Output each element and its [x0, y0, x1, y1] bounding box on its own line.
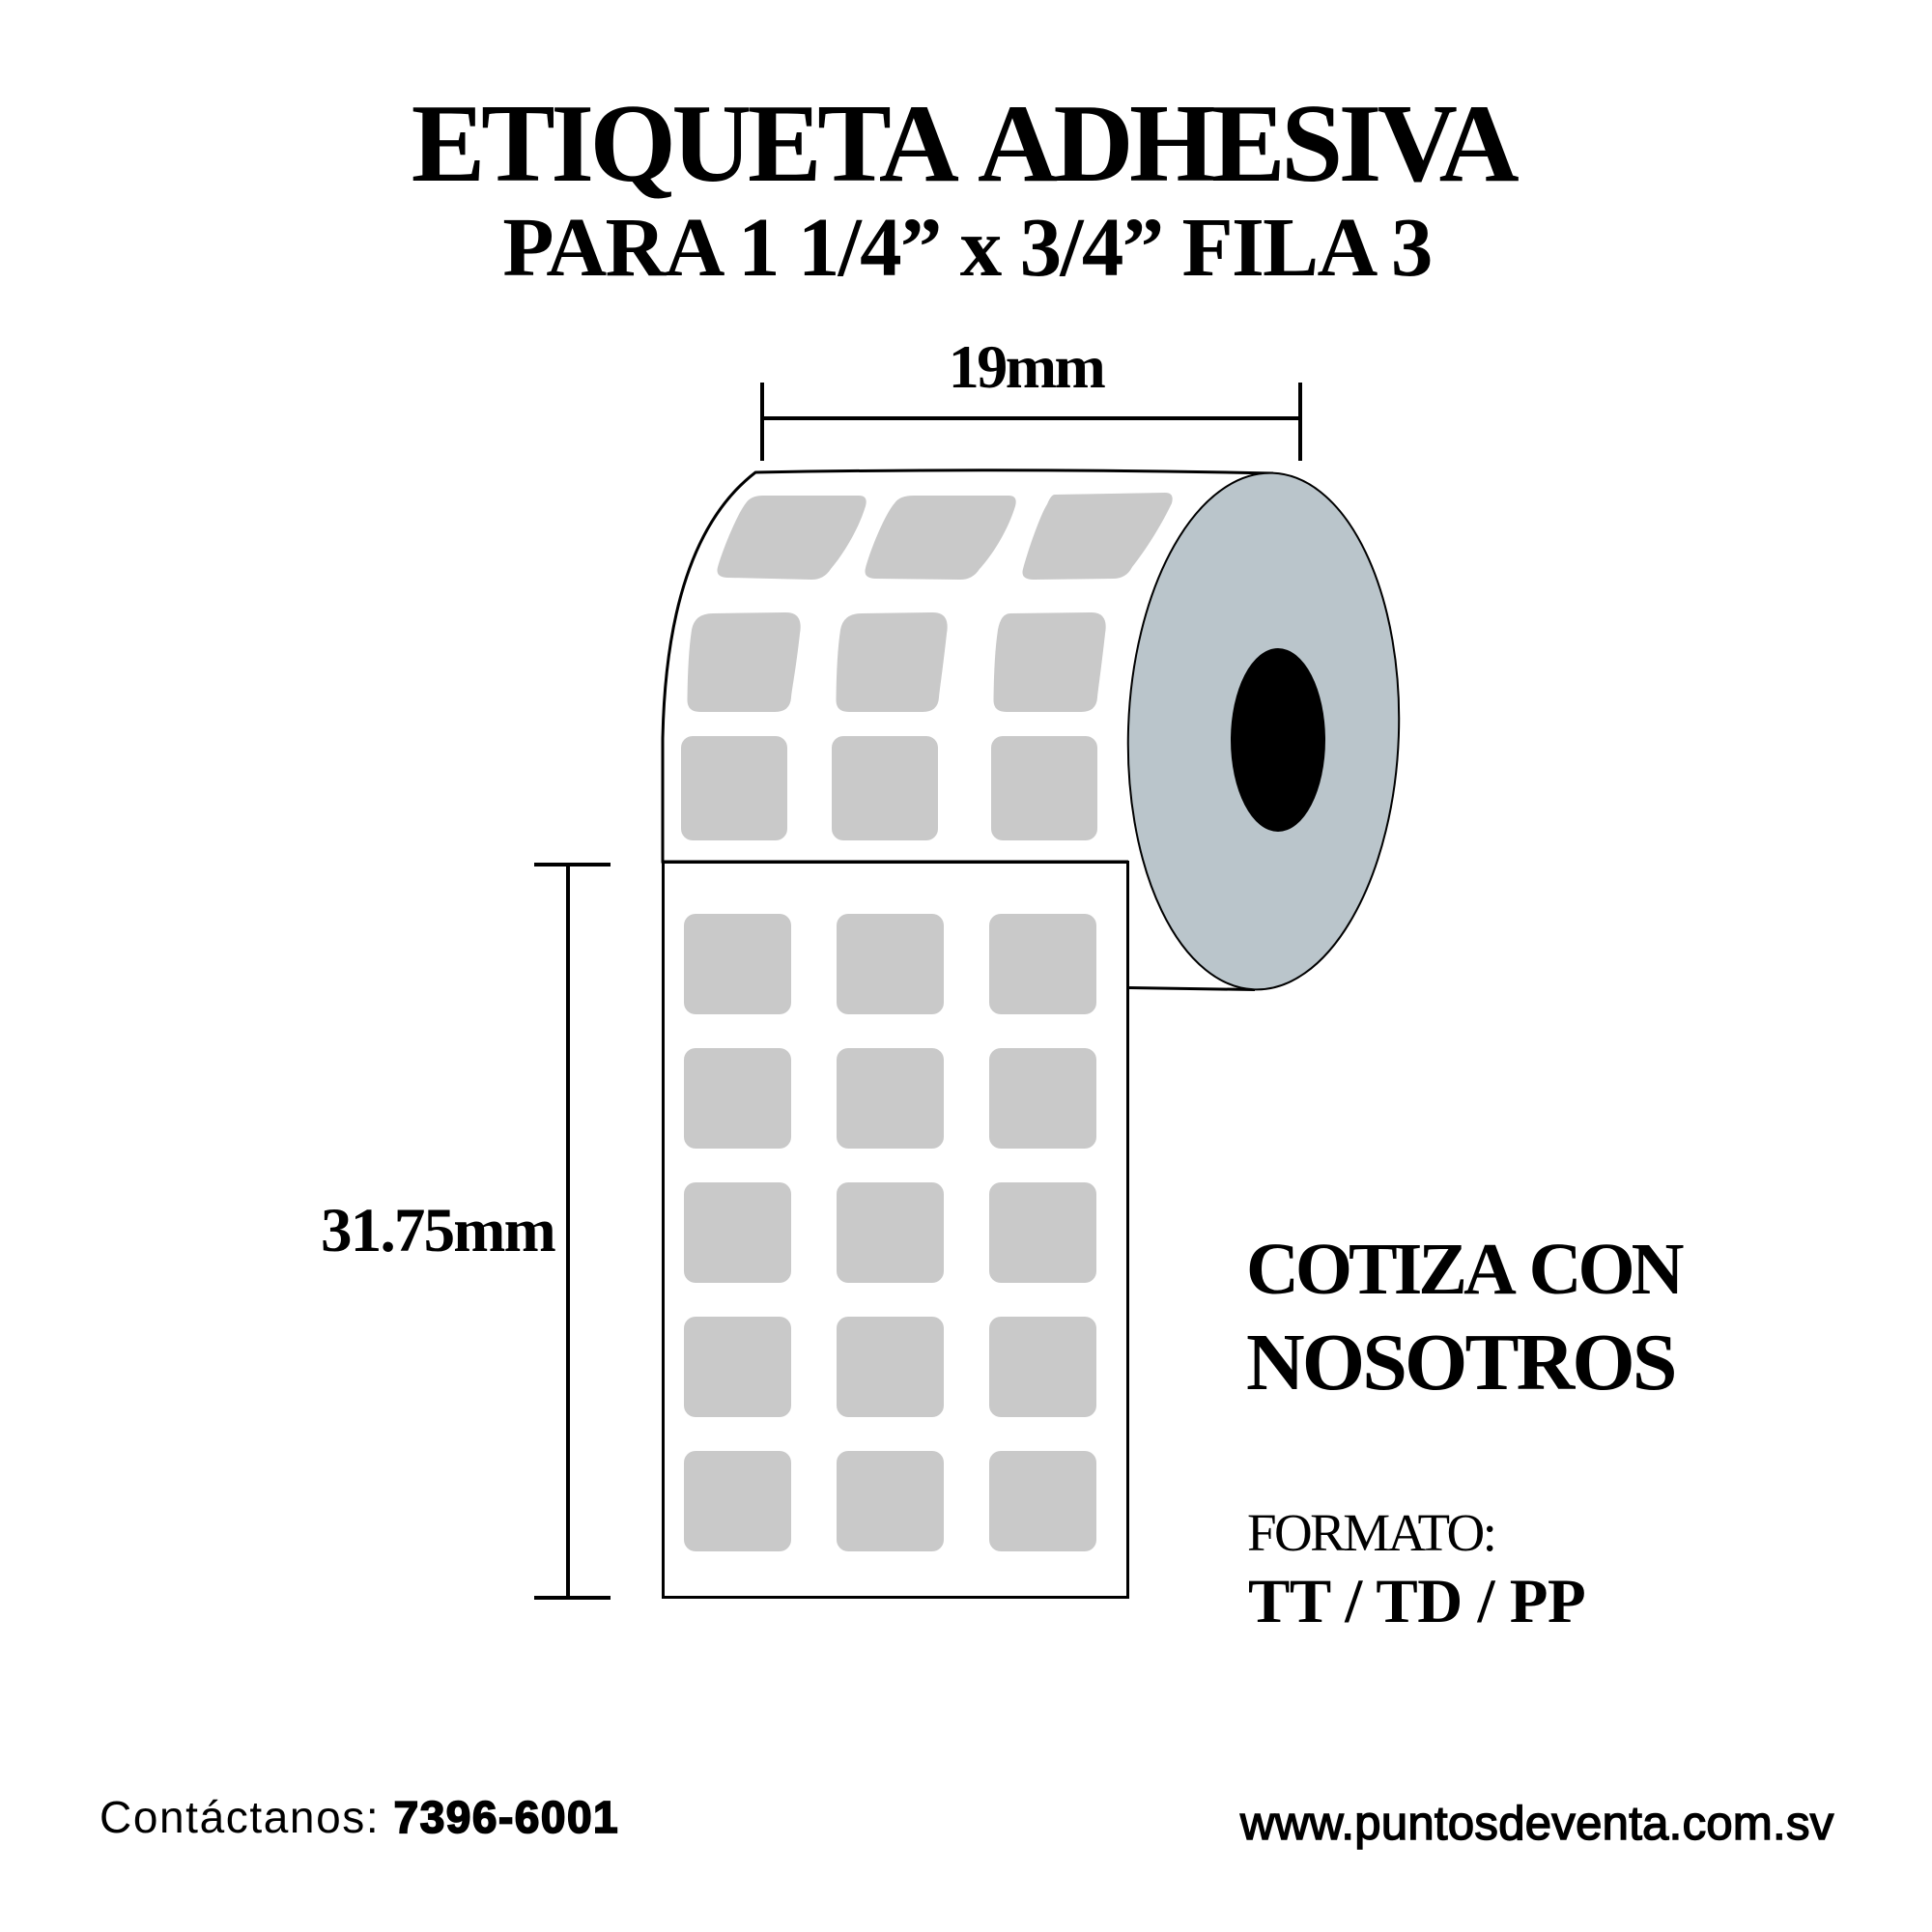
- svg-text:www.puntosdeventa.com.sv: www.puntosdeventa.com.sv: [1239, 1798, 1834, 1850]
- svg-text:ETIQUETA ADHESIVA: ETIQUETA ADHESIVA: [412, 82, 1520, 205]
- svg-text:COTIZA CON: COTIZA CON: [1246, 1229, 1684, 1310]
- svg-text:FORMATO:: FORMATO:: [1247, 1503, 1494, 1562]
- svg-text:Contáctanos: 7396-6001: Contáctanos: 7396-6001: [99, 1792, 619, 1842]
- svg-text:TT / TD / PP: TT / TD / PP: [1248, 1567, 1585, 1636]
- svg-text:31.75mm: 31.75mm: [321, 1196, 556, 1265]
- svg-text:NOSOTROS: NOSOTROS: [1246, 1318, 1675, 1407]
- svg-text:PARA 1 1/4” x 3/4” FILA 3: PARA 1 1/4” x 3/4” FILA 3: [502, 200, 1431, 294]
- svg-text:19mm: 19mm: [949, 332, 1106, 401]
